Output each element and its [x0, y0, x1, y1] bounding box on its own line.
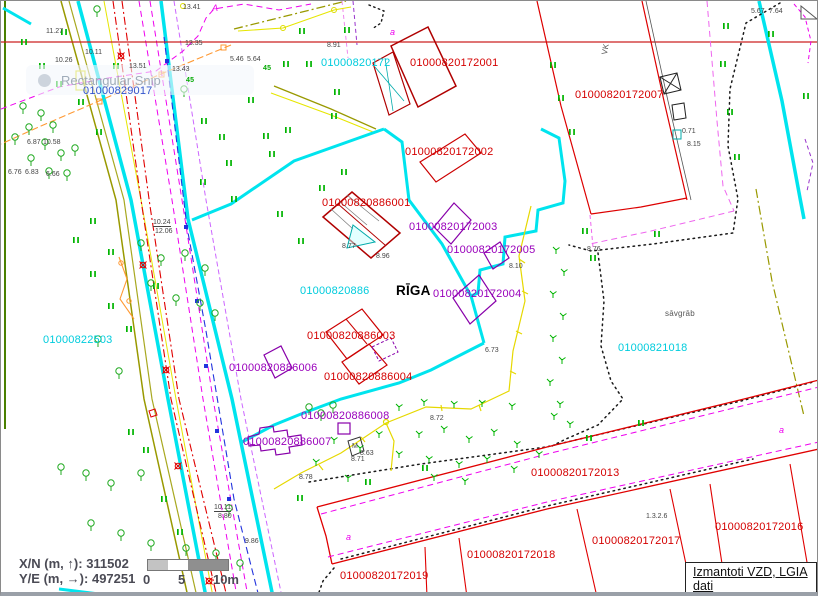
- building-172001: [391, 27, 456, 107]
- building-886006: [264, 346, 292, 378]
- cyan-parcel-boundary: [59, 129, 565, 596]
- slope-line: [274, 206, 531, 489]
- coordinate-x: X/N (m, ↑): 311502: [19, 556, 135, 571]
- parcels-right-top: [537, 1, 817, 416]
- building-172002: [420, 134, 481, 182]
- scale-tick-0: 0: [143, 572, 150, 587]
- building-886003: [326, 309, 383, 359]
- cadastre-map-window: Rectangular Snip 01000820172010008208860…: [0, 0, 818, 596]
- coordinate-x-value: 311502: [86, 556, 129, 571]
- building-172003: [434, 203, 471, 244]
- north-symbol: [801, 6, 817, 19]
- building-886007: [248, 426, 302, 455]
- attribution-link[interactable]: Izmantoti VZD, LGIA dati: [685, 562, 817, 596]
- coordinate-readout: X/N (m, ↑): 311502 Y/E (m, →): 497251: [19, 556, 135, 586]
- snip-toast: Rectangular Snip: [26, 65, 254, 95]
- snip-toast-text: Rectangular Snip: [61, 73, 161, 88]
- coordinate-y: Y/E (m, →): 497251: [19, 571, 135, 586]
- coordinate-y-value: 497251: [92, 571, 135, 586]
- building-886008: [338, 423, 350, 434]
- scale-bar-graphic: [147, 559, 229, 571]
- scale-bar: 0 5 10m: [147, 559, 239, 587]
- snip-icon: [38, 74, 51, 87]
- scale-tick-5: 5: [178, 572, 185, 587]
- coordinate-x-label: X/N (m, ↑):: [19, 556, 83, 571]
- scale-tick-10m: 10m: [213, 572, 239, 587]
- building-886004: [342, 344, 387, 384]
- coordinate-y-label: Y/E (m, →):: [19, 571, 88, 586]
- building-172004: [453, 275, 496, 324]
- scrub-marks: [313, 247, 574, 485]
